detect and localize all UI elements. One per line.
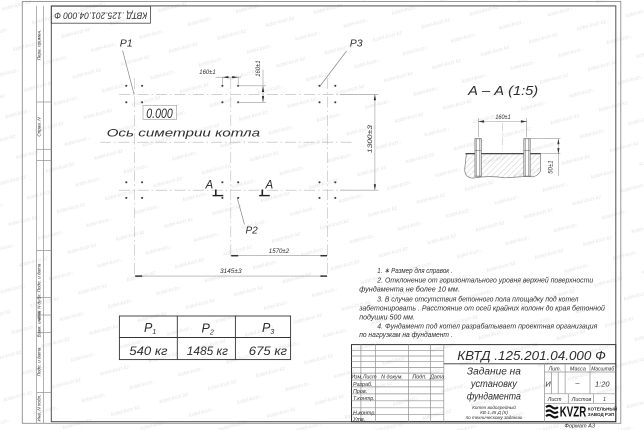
svg-text:160±1: 160±1 (495, 114, 510, 121)
svg-text:Н.контр.: Н.контр. (353, 410, 376, 416)
svg-text:ЗАВОД РЭП: ЗАВОД РЭП (588, 412, 615, 417)
svg-text:Лит.: Лит. (547, 366, 561, 372)
svg-text:1300±3: 1300±3 (367, 125, 374, 153)
svg-text:А: А (264, 180, 273, 192)
svg-text:Дата: Дата (429, 375, 444, 381)
svg-text:Инв. N подл.: Инв. N подл. (37, 395, 42, 422)
svg-text:КОТЕЛЬНЫЙ: КОТЕЛЬНЫЙ (588, 404, 617, 411)
svg-text:Формат А3: Формат А3 (564, 423, 595, 429)
svg-text:1485 кг: 1485 кг (187, 344, 228, 358)
svg-text:Взам. инв. N: Взам. инв. N (37, 310, 42, 337)
svg-text:N докум.: N докум. (381, 375, 403, 381)
svg-text:1:20: 1:20 (595, 379, 610, 388)
svg-text:Лист: Лист (547, 397, 562, 403)
svg-text:КВТД .125.201.04.000 Ф: КВТД .125.201.04.000 Ф (54, 11, 147, 22)
svg-text:Т.контр.: Т.контр. (353, 396, 375, 402)
svg-text:3145±3: 3145±3 (220, 268, 242, 275)
svg-text:Справ. N: Справ. N (37, 117, 42, 137)
svg-text:3. В случае отсутствия бетонно: 3. В случае отсутствия бетонного пола пл… (377, 294, 579, 303)
svg-text:1. ∗ Размер для справок .: 1. ∗ Размер для справок . (377, 266, 452, 275)
svg-text:50±1: 50±1 (547, 160, 554, 174)
svg-text:Пров.: Пров. (353, 389, 367, 395)
svg-text:А – А (1:5): А – А (1:5) (467, 84, 538, 98)
svg-text:Подп. и дата: Подп. и дата (37, 347, 42, 376)
svg-text:P1: P1 (120, 37, 133, 49)
svg-text:Подп. и дата: Подп. и дата (37, 263, 42, 292)
svg-text:–: – (574, 379, 580, 388)
svg-text:1570±2: 1570±2 (269, 248, 290, 255)
svg-text:фундамента: фундамента (467, 390, 521, 402)
svg-text:Изм.Лист: Изм.Лист (351, 375, 377, 381)
svg-text:2. Отклонение от горизонтально: 2. Отклонение от горизонтального уровня … (376, 275, 594, 284)
svg-text:Листов: Листов (571, 397, 592, 403)
svg-text:А: А (204, 180, 213, 192)
svg-text:И: И (545, 379, 551, 388)
svg-text:Масса: Масса (570, 366, 586, 372)
svg-text:подушки 500 мм.: подушки 500 мм. (359, 313, 415, 322)
svg-text:фундамента не более 10 мм.: фундамента не более 10 мм. (359, 285, 460, 294)
svg-text:Разраб.: Разраб. (353, 382, 373, 388)
svg-text:по техническому заданию: по техническому заданию (466, 415, 523, 420)
svg-text:1: 1 (603, 397, 606, 403)
svg-text:160±1: 160±1 (255, 60, 262, 76)
svg-text:KVZR: KVZR (560, 405, 587, 421)
svg-text:P2: P2 (246, 226, 259, 237)
svg-text:Подп.: Подп. (412, 375, 426, 381)
svg-text:Ось симетрии котла: Ось симетрии котла (107, 127, 261, 139)
svg-text:Масштаб: Масштаб (591, 366, 615, 372)
svg-text:по нагрузкам на фундамент .: по нагрузкам на фундамент . (359, 330, 453, 339)
svg-text:540 кг: 540 кг (129, 344, 167, 358)
svg-text:Задание на: Задание на (467, 366, 521, 377)
svg-text:675 кг: 675 кг (249, 344, 287, 358)
svg-text:160±1: 160±1 (199, 69, 215, 76)
svg-text:0.000: 0.000 (146, 106, 173, 121)
svg-text:P3: P3 (350, 37, 363, 49)
svg-text:Перв. примен.: Перв. примен. (37, 30, 42, 61)
svg-text:забетонировать . Расстояние от: забетонировать . Расстояние от осей край… (358, 304, 605, 313)
svg-text:КВТД .125.201.04.000 Ф: КВТД .125.201.04.000 Ф (457, 348, 606, 363)
svg-text:установку: установку (470, 379, 518, 390)
svg-text:Утв.: Утв. (352, 417, 365, 423)
